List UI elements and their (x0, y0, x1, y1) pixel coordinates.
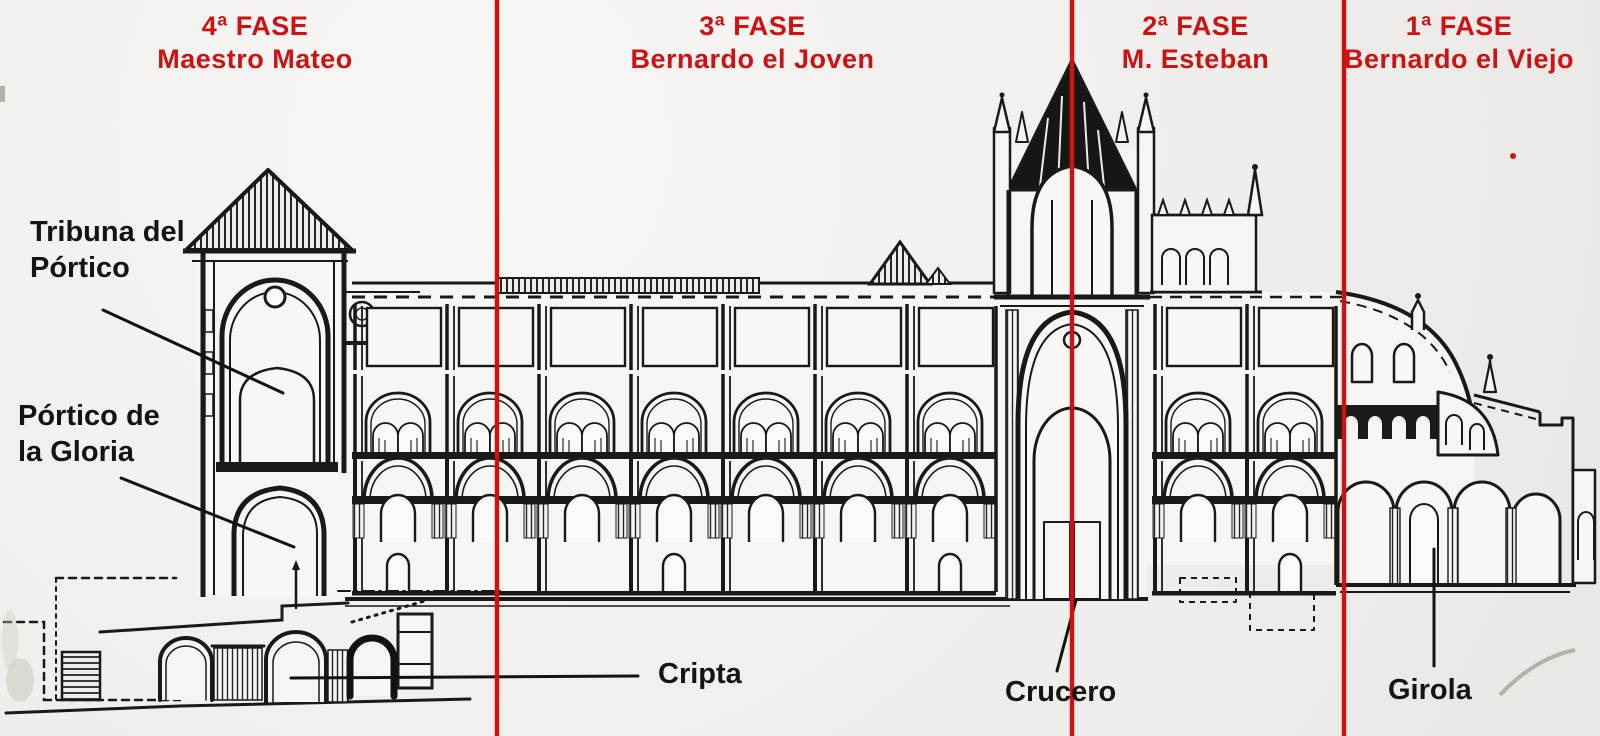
phase-label-1: 1ª FASE Bernardo el Viejo (1328, 10, 1590, 76)
phase-4-author: Maestro Mateo (120, 43, 390, 76)
roof-turret (870, 242, 930, 284)
crucero-label: Crucero (1005, 674, 1116, 710)
pinnacle (994, 98, 1010, 132)
pinnacle (1248, 170, 1262, 215)
tribuna-label: Tribuna del Pórtico (30, 214, 185, 286)
phase-1-fase: 1ª FASE (1328, 10, 1590, 43)
phase-2-author: M. Esteban (1078, 43, 1313, 76)
phase-2-fase: 2ª FASE (1078, 10, 1313, 43)
cripta-label: Cripta (658, 656, 742, 692)
tower-roof (186, 170, 352, 250)
roof-parapet-hatch (497, 278, 759, 293)
scanned-cathedral-phases-diagram: 4ª FASE Maestro Mateo 3ª FASE Bernardo e… (0, 0, 1600, 736)
stray-red-dot (1510, 153, 1516, 159)
crypt-stair-hatch (62, 652, 100, 700)
portico-gloria-label: Pórtico de la Gloria (18, 398, 160, 470)
faint-ground-mark (1500, 650, 1575, 695)
phase-3-fase: 3ª FASE (600, 10, 905, 43)
phase-3-author: Bernardo el Joven (600, 43, 905, 76)
pinnacle (1138, 98, 1154, 132)
phase-label-2: 2ª FASE M. Esteban (1078, 10, 1313, 76)
phase-4-fase: 4ª FASE (120, 10, 390, 43)
phase-1-author: Bernardo el Viejo (1328, 43, 1590, 76)
phase-label-4: 4ª FASE Maestro Mateo (120, 10, 390, 76)
cathedral-longitudinal-section (0, 0, 1600, 736)
pinnacle (1484, 362, 1496, 392)
girola-label: Girola (1388, 672, 1472, 708)
oculus-window (265, 287, 285, 307)
phase-label-3: 3ª FASE Bernardo el Joven (600, 10, 905, 76)
cripta-leader-line (291, 676, 638, 678)
